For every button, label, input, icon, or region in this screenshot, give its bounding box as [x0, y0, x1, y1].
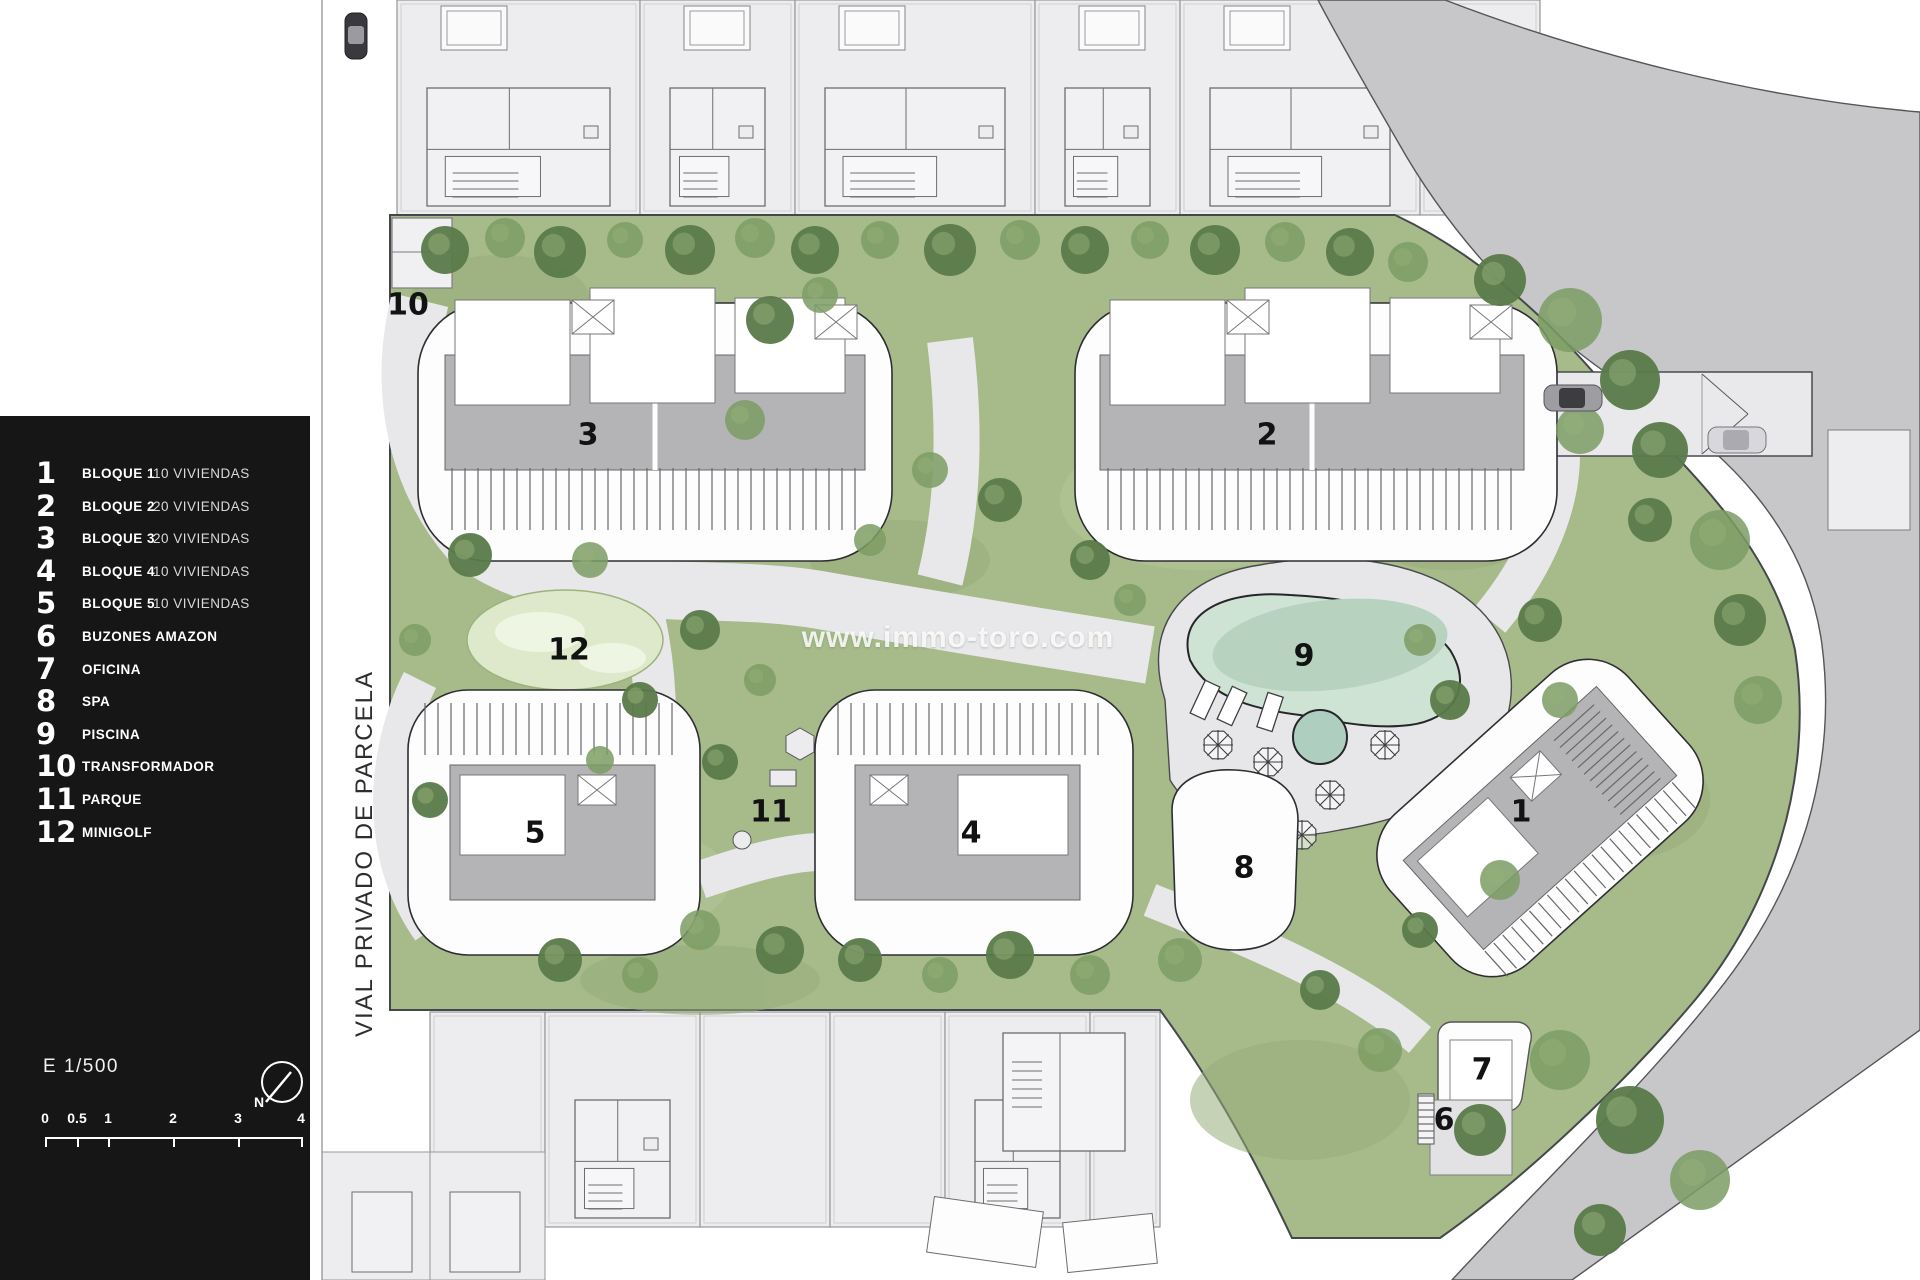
car-icon-top-left [345, 13, 367, 59]
scale-tick-label: 1 [104, 1110, 112, 1126]
legend-item: 5 BLOQUE 5 10 VIVIENDAS [36, 587, 304, 620]
scale-bar-tick [45, 1137, 47, 1147]
legend-item: 10 TRANSFORMADOR [36, 750, 304, 783]
building-2 [1075, 288, 1557, 561]
scale-text: E 1/500 [43, 1056, 119, 1078]
north-label: N [254, 1094, 264, 1110]
map-label-spa: 8 [1234, 851, 1255, 886]
legend-item: 8 SPA [36, 685, 304, 718]
scale-tick-label: 4 [297, 1110, 305, 1126]
map-label-parque: 11 [750, 795, 792, 830]
map-label-bloque-4: 4 [961, 816, 982, 851]
legend-item: 3 BLOQUE 3 20 VIVIENDAS [36, 522, 304, 555]
map-label-bloque-3: 3 [578, 418, 599, 453]
legend-item: 11 PARQUE [36, 783, 304, 816]
map-label-bloque-5: 5 [525, 816, 546, 851]
site-plan-page: 1 BLOQUE 1 10 VIVIENDAS 2 BLOQUE 2 20 VI… [0, 0, 1920, 1280]
street-label: VIAL PRIVADO DE PARCELA [351, 727, 381, 1037]
scale-tick-label: 0.5 [67, 1110, 86, 1126]
scale-bar-tick [108, 1137, 110, 1147]
legend-item: 4 BLOQUE 4 10 VIVIENDAS [36, 555, 304, 588]
amazon-mailboxes [1418, 1094, 1434, 1144]
legend-list: 1 BLOQUE 1 10 VIVIENDAS 2 BLOQUE 2 20 VI… [36, 457, 304, 848]
watermark: www.immo-toro.com [802, 621, 1115, 655]
car-icon-silver [1708, 427, 1766, 453]
scale-bar-tick [77, 1137, 79, 1147]
legend-item: 7 OFICINA [36, 653, 304, 686]
bottom-neighbor-plots [322, 1012, 1160, 1280]
legend-item: 9 PISCINA [36, 718, 304, 751]
scale-bar-tick [238, 1137, 240, 1147]
scale-tick-label: 2 [169, 1110, 177, 1126]
map-label-transformador: 10 [387, 288, 429, 323]
building-3 [418, 288, 892, 561]
scale-tick-label: 0 [41, 1110, 49, 1126]
legend-item: 6 BUZONES AMAZON [36, 620, 304, 653]
scale-bar-tick [301, 1137, 303, 1147]
map-label-oficina: 7 [1472, 1053, 1493, 1088]
map-label-buzones: 6 [1434, 1103, 1455, 1138]
jacuzzi [1293, 710, 1347, 764]
legend-panel: 1 BLOQUE 1 10 VIVIENDAS 2 BLOQUE 2 20 VI… [0, 416, 310, 1280]
map-label-piscina: 9 [1294, 639, 1315, 674]
car-icon-dark [1544, 385, 1602, 411]
scale-bar-tick [173, 1137, 175, 1147]
map-label-bloque-2: 2 [1257, 418, 1278, 453]
legend-item: 1 BLOQUE 1 10 VIVIENDAS [36, 457, 304, 490]
map-label-minigolf: 12 [548, 633, 590, 668]
building-5 [408, 690, 700, 955]
legend-item: 2 BLOQUE 2 20 VIVIENDAS [36, 490, 304, 523]
scale-tick-label: 3 [234, 1110, 242, 1126]
map-label-bloque-1: 1 [1511, 795, 1532, 830]
legend-item: 12 MINIGOLF [36, 816, 304, 849]
